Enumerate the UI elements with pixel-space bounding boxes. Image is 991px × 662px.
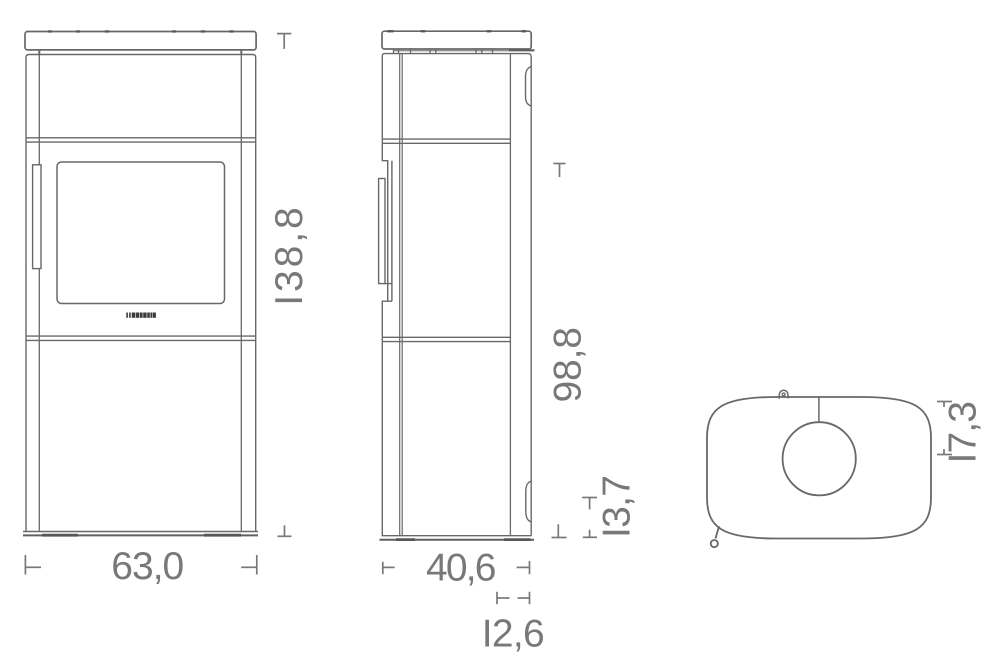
svg-text:63,0: 63,0	[111, 545, 183, 588]
svg-text:98,8: 98,8	[547, 329, 590, 403]
svg-text:I7,3: I7,3	[942, 403, 985, 464]
svg-text:I38,8: I38,8	[268, 209, 311, 306]
svg-text:40,6: 40,6	[426, 546, 495, 589]
svg-text:I3,7: I3,7	[596, 477, 639, 539]
svg-text:I2,6: I2,6	[482, 613, 544, 656]
